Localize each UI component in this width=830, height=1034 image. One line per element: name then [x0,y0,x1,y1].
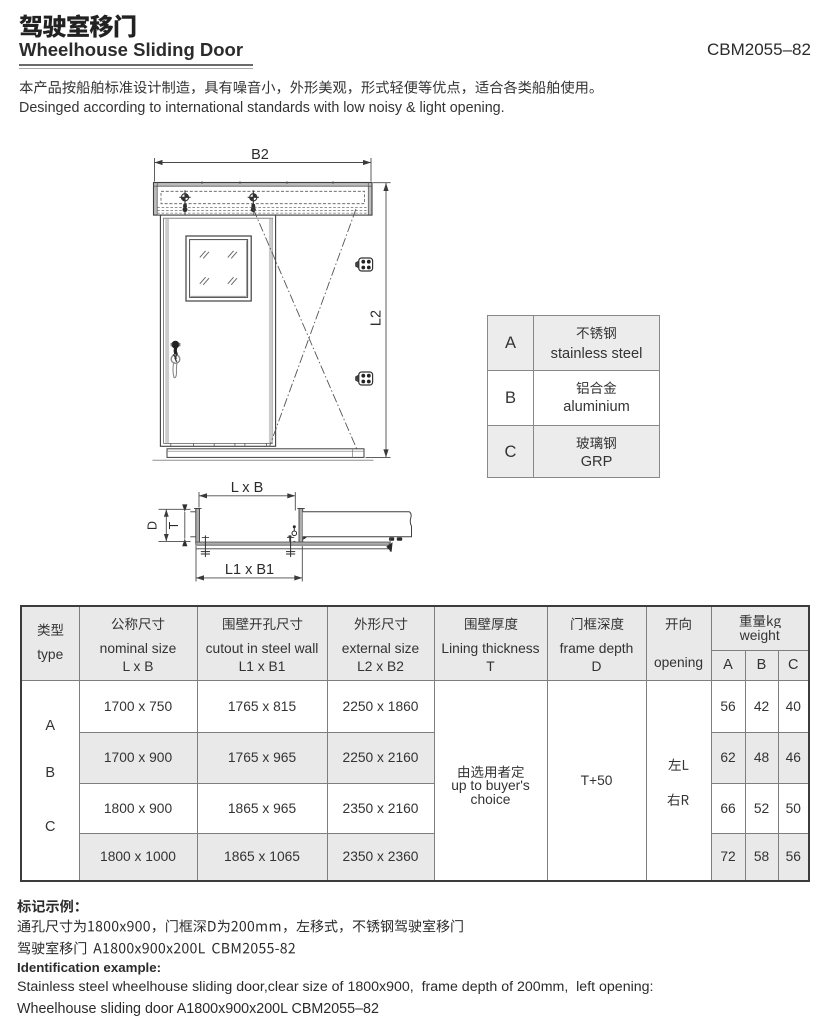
svg-text:D: D [146,521,160,530]
svg-text:B2: B2 [251,147,269,163]
svg-text:L x B: L x B [231,480,264,496]
svg-text:L1 x B1: L1 x B1 [225,562,274,578]
svg-text:L2: L2 [369,310,385,326]
svg-text:T: T [167,521,181,529]
